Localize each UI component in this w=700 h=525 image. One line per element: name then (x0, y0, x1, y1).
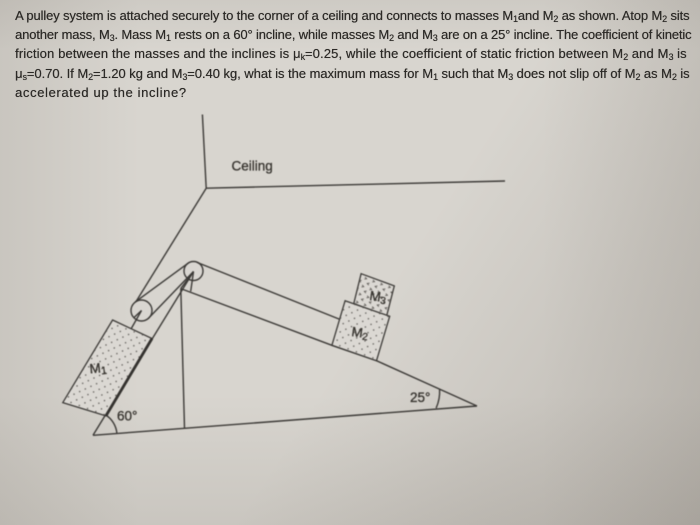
svg-text:25°: 25° (410, 390, 430, 405)
svg-text:60°: 60° (117, 409, 137, 424)
svg-text:Ceiling: Ceiling (232, 159, 273, 174)
